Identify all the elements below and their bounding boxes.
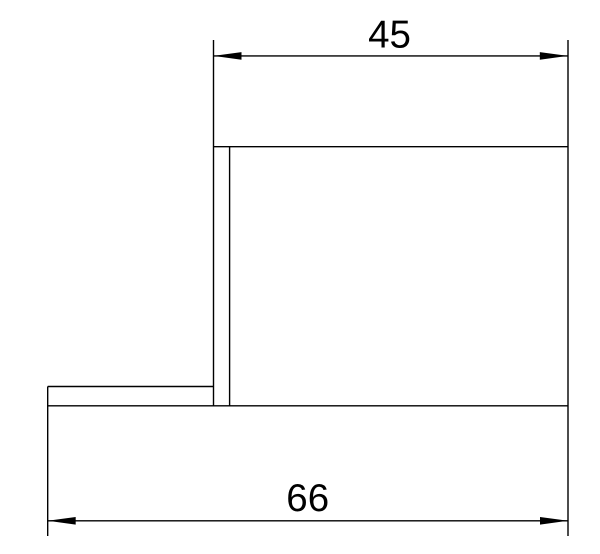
svg-text:66: 66: [286, 477, 329, 520]
svg-text:45: 45: [368, 13, 411, 56]
